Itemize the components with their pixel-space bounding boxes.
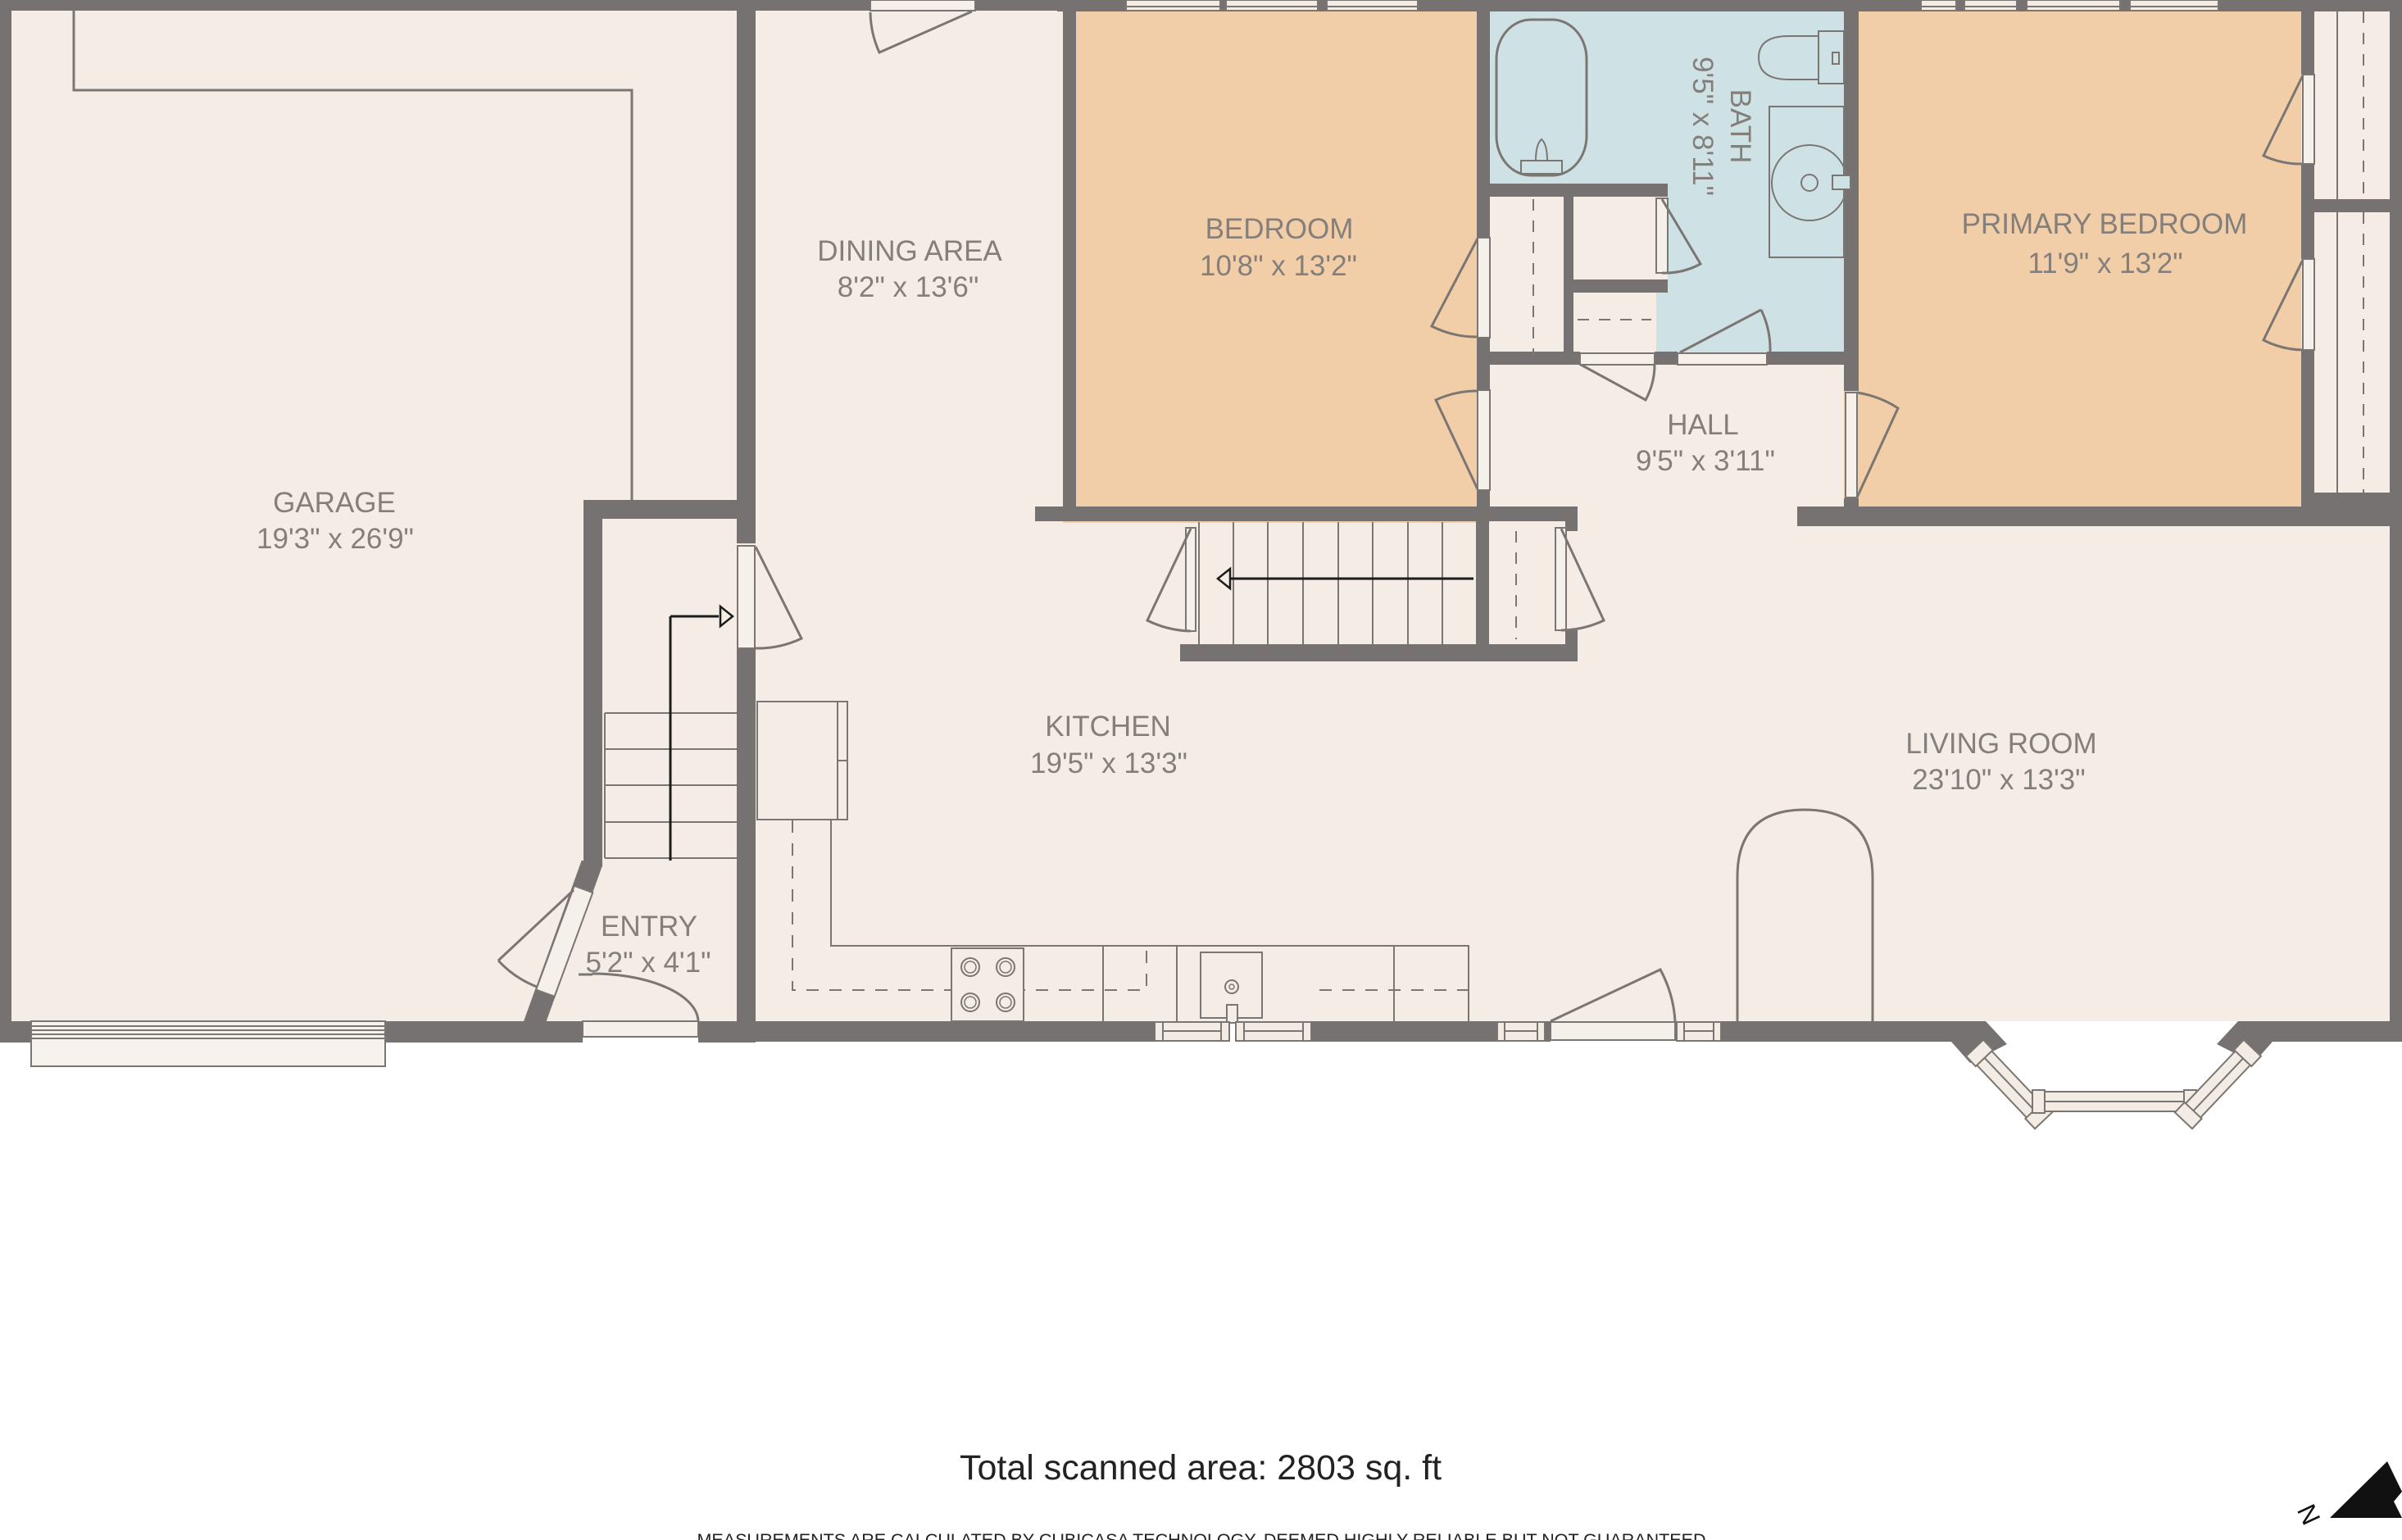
svg-text:DINING AREA: DINING AREA	[817, 235, 1002, 267]
svg-text:ENTRY: ENTRY	[601, 911, 697, 943]
svg-text:LIVING ROOM: LIVING ROOM	[1905, 728, 2096, 760]
svg-text:GARAGE: GARAGE	[273, 487, 396, 519]
svg-text:Total scanned area: 2803 sq. f: Total scanned area: 2803 sq. ft	[960, 1448, 1442, 1488]
svg-text:19'3" x 26'9": 19'3" x 26'9"	[257, 523, 414, 555]
svg-text:9'5" x 3'11": 9'5" x 3'11"	[1636, 445, 1775, 477]
svg-text:PRIMARY BEDROOM: PRIMARY BEDROOM	[1962, 208, 2248, 240]
svg-text:BATH: BATH	[1724, 89, 1756, 164]
svg-text:8'2" x 13'6": 8'2" x 13'6"	[838, 271, 979, 303]
svg-text:23'10" x 13'3": 23'10" x 13'3"	[1912, 764, 2085, 796]
svg-text:19'5" x 13'3": 19'5" x 13'3"	[1030, 747, 1187, 779]
svg-text:9'5" x 8'11": 9'5" x 8'11"	[1687, 57, 1719, 196]
svg-text:MEASUREMENTS ARE CALCULATED BY: MEASUREMENTS ARE CALCULATED BY CUBICASA …	[697, 1530, 1706, 1540]
svg-text:5'2" x 4'1": 5'2" x 4'1"	[585, 947, 711, 979]
svg-text:11'9" x 13'2": 11'9" x 13'2"	[2027, 248, 2182, 279]
svg-text:BEDROOM: BEDROOM	[1206, 213, 1354, 245]
svg-text:HALL: HALL	[1667, 409, 1739, 441]
svg-text:KITCHEN: KITCHEN	[1045, 711, 1171, 743]
svg-text:10'8" x 13'2": 10'8" x 13'2"	[1200, 250, 1357, 282]
